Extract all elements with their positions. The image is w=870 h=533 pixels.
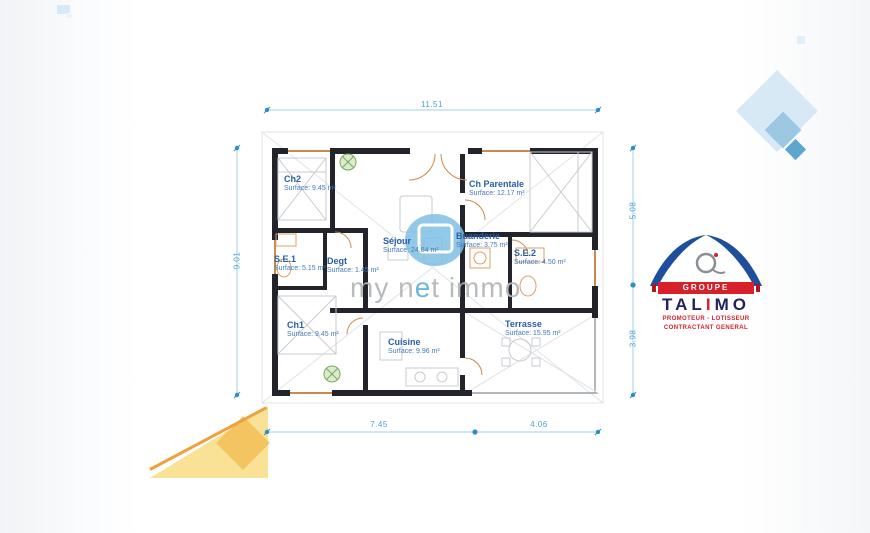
logo-talimo-red-i: I <box>706 295 715 314</box>
room-label-degt: Degt Surface: 1.45 m² <box>327 256 379 276</box>
room-surface: Surface: 9.45 m² <box>284 185 336 194</box>
room-label-ch-parentale: Ch Parentale Surface: 12.17 m² <box>469 179 525 199</box>
room-surface: Surface: 12.17 m² <box>469 190 525 199</box>
room-surface: Surface: 9.96 m² <box>388 348 440 357</box>
floor-plan-page: 11.51 9.01 5.08 3.98 7.45 4.06 Ch2 Surfa… <box>0 0 870 533</box>
watermark-prefix: my n <box>350 272 415 303</box>
room-label-se1: S.E.1 Surface: 5.15 m² <box>274 254 326 274</box>
room-name: S.E.2 <box>514 248 566 259</box>
groupe-talimo-logo: GROUPE TALIMO PROMOTEUR - LOTISSEUR CONT… <box>644 230 768 333</box>
logo-talimo-part: TAL <box>662 295 706 314</box>
room-surface: Surface: 3.75 m² <box>456 242 508 251</box>
room-name: Terrasse <box>505 319 561 330</box>
room-name: Buanderie <box>456 231 508 242</box>
logo-talimo-part: MO <box>715 295 750 314</box>
room-name: Ch2 <box>284 174 336 185</box>
decor-blue-square-top-left-small <box>66 13 72 18</box>
watermark-text: my net immo <box>350 272 521 304</box>
dimension-top: 11.51 <box>415 100 449 109</box>
room-name: Ch1 <box>287 320 339 331</box>
watermark-accent: e <box>415 272 432 303</box>
room-name: Séjour <box>383 236 439 247</box>
room-surface: Surface: 1.45 m² <box>327 267 379 276</box>
logo-subtitle-1: PROMOTEUR - LOTISSEUR <box>644 315 768 324</box>
bed-ch-parentale <box>530 152 592 232</box>
dimension-right-lower: 3.98 <box>629 322 638 356</box>
plant-icon <box>324 366 340 382</box>
washer-buanderie <box>470 248 490 268</box>
dimension-bottom-right: 4.06 <box>522 420 556 429</box>
room-surface: Surface: 4.50 m² <box>514 259 566 268</box>
room-name: Cuisine <box>388 337 440 348</box>
room-label-ch2: Ch2 Surface: 9.45 m² <box>284 174 336 194</box>
room-label-sejour: Séjour Surface: 24.84 m² <box>383 236 439 256</box>
room-label-buanderie: Buanderie Surface: 3.75 m² <box>456 231 508 251</box>
room-surface: Surface: 24.84 m² <box>383 247 439 256</box>
dimension-left: 9.01 <box>233 244 242 278</box>
gecko-icon <box>697 253 725 273</box>
room-label-cuisine: Cuisine Surface: 9.96 m² <box>388 337 440 357</box>
logo-groupe-banner: GROUPE <box>658 282 754 294</box>
logo-roof-icon <box>648 230 764 288</box>
room-name: Degt <box>327 256 379 267</box>
room-surface: Surface: 15.95 m² <box>505 330 561 339</box>
dimension-right-upper: 5.08 <box>629 194 638 228</box>
room-surface: Surface: 5.15 m² <box>274 265 326 274</box>
room-name: S.E.1 <box>274 254 326 265</box>
logo-talimo-text: TALIMO <box>644 295 768 315</box>
room-label-ch1: Ch1 Surface: 9.45 m² <box>287 320 339 340</box>
room-label-se2: S.E.2 Surface: 4.50 m² <box>514 248 566 268</box>
decor-blue-square-top-right-tiny <box>797 36 805 44</box>
plant-icon <box>340 154 356 170</box>
room-surface: Surface: 9.45 m² <box>287 331 339 340</box>
watermark-suffix: t immo <box>431 272 521 303</box>
room-name: Ch Parentale <box>469 179 525 190</box>
room-label-terrasse: Terrasse Surface: 15.95 m² <box>505 319 561 339</box>
logo-subtitle-2: CONTRACTANT GENERAL <box>644 324 768 333</box>
dimension-bottom-left: 7.45 <box>362 420 396 429</box>
